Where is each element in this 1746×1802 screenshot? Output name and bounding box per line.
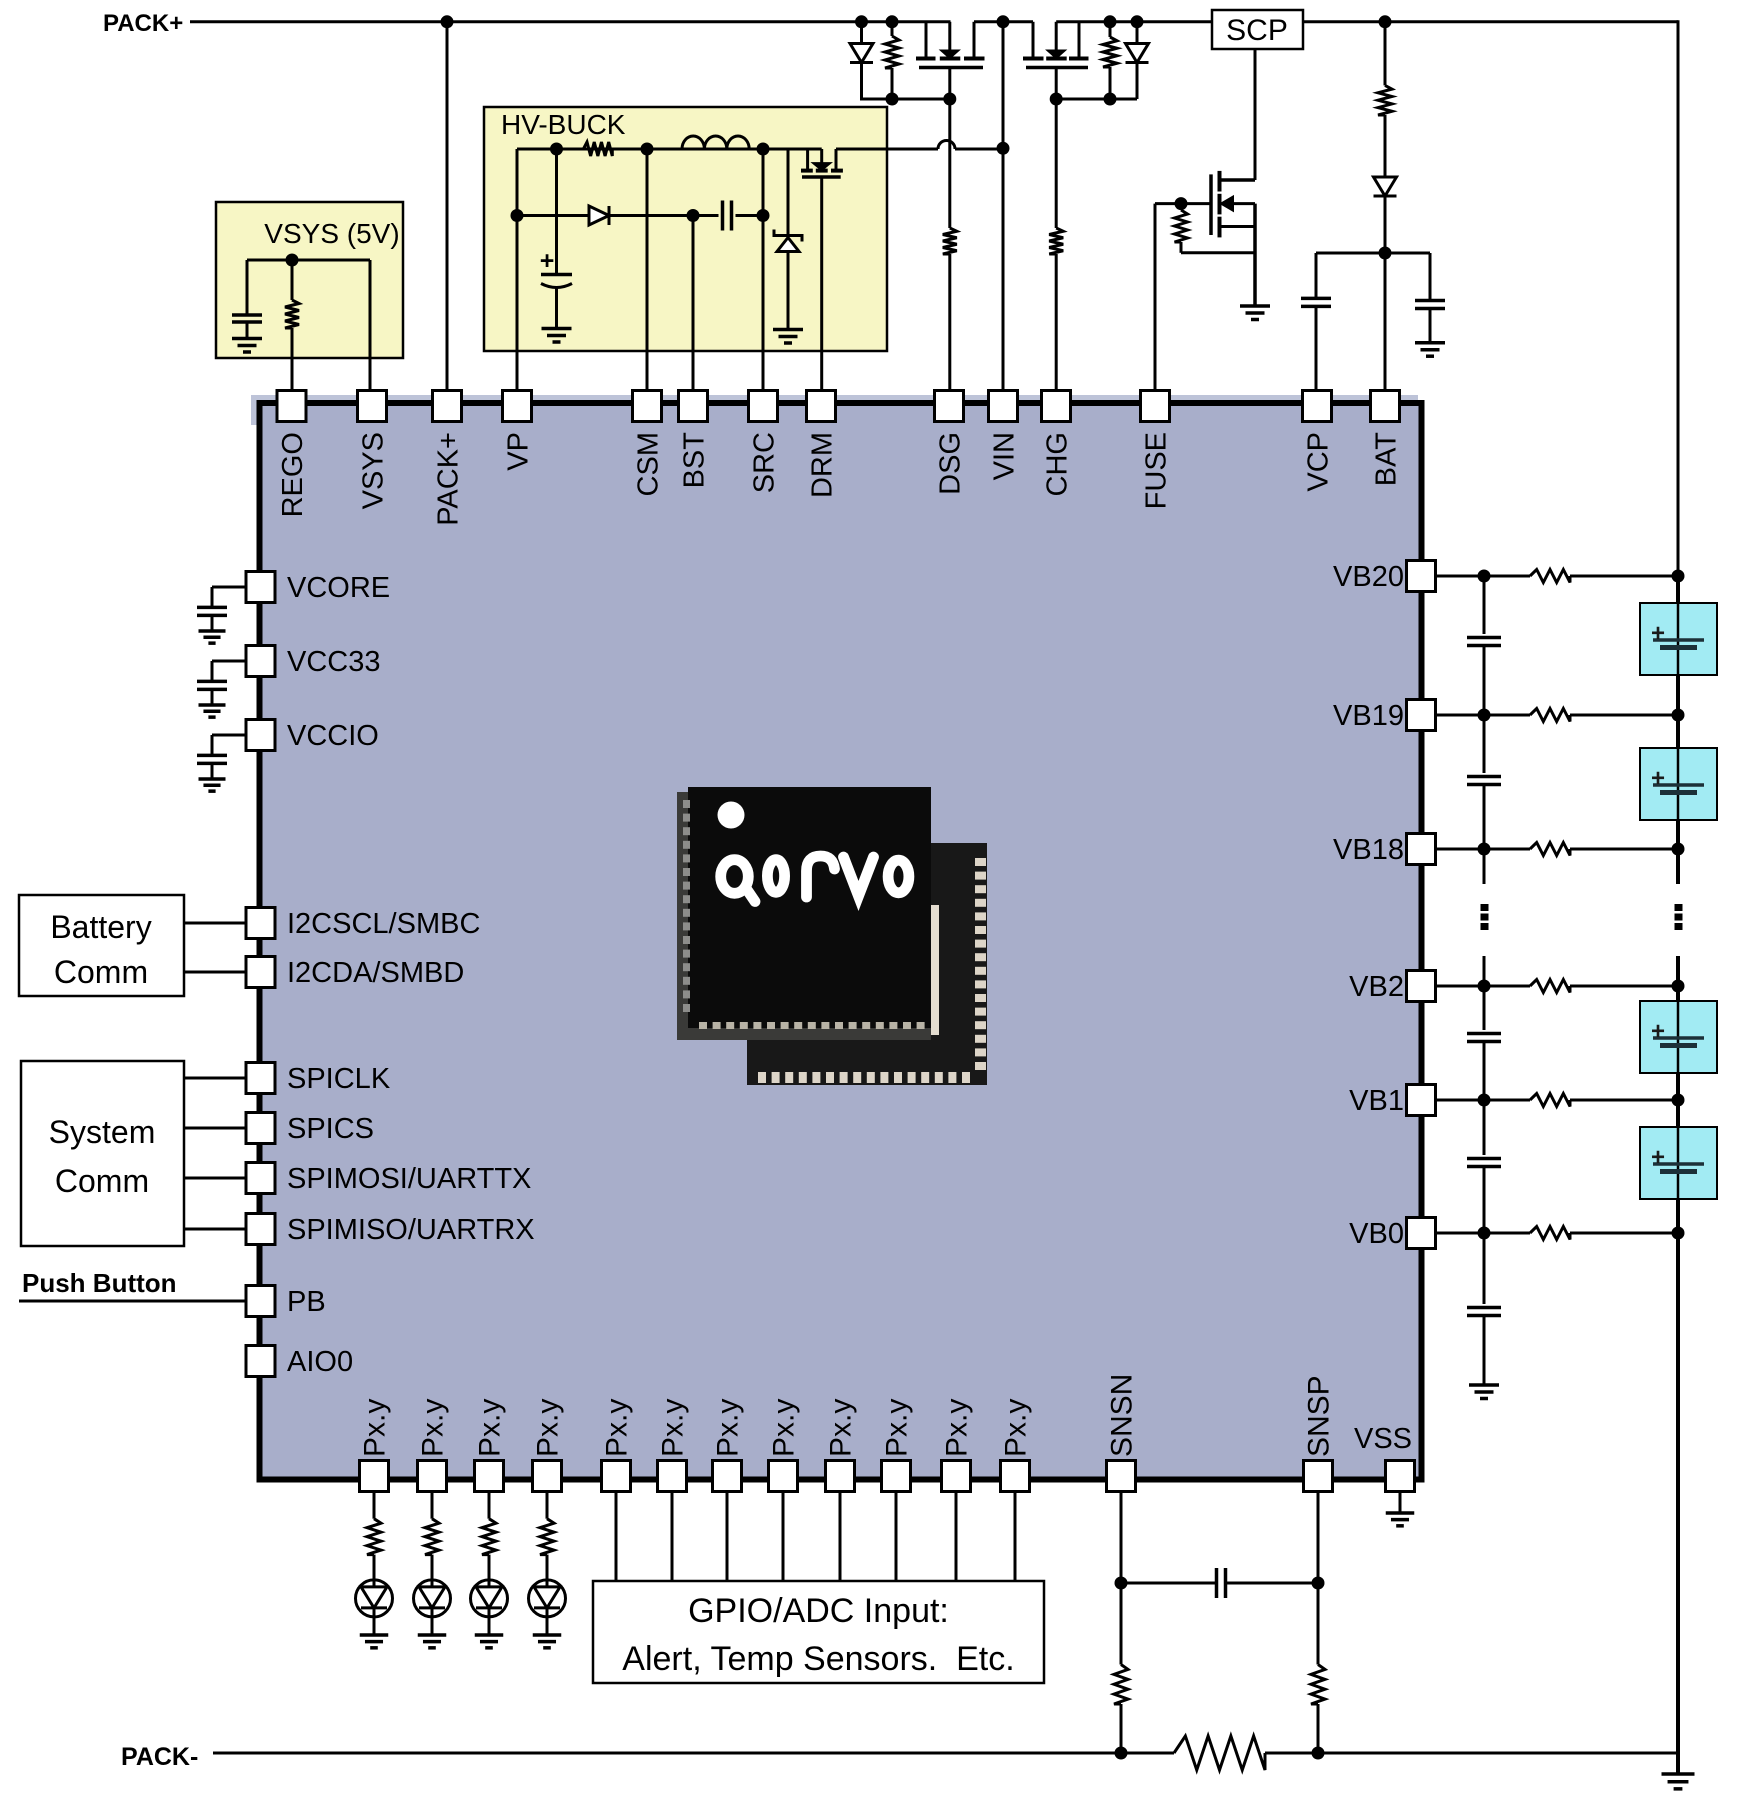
svg-text:PACK+: PACK+ <box>433 432 465 526</box>
svg-text:VCORE: VCORE <box>287 572 390 604</box>
svg-text:SNSP: SNSP <box>1303 1375 1336 1457</box>
svg-text:VCCIO: VCCIO <box>287 720 379 752</box>
svg-text:DSG: DSG <box>935 432 967 495</box>
svg-text:Comm: Comm <box>54 954 148 990</box>
svg-text:VB19: VB19 <box>1333 700 1404 732</box>
svg-text:HV-BUCK: HV-BUCK <box>501 109 626 140</box>
svg-text:Px.y: Px.y <box>601 1399 634 1457</box>
svg-text:Px.y: Px.y <box>881 1399 914 1457</box>
svg-text:PACK+: PACK+ <box>103 10 183 37</box>
svg-text:Px.y: Px.y <box>1000 1399 1033 1457</box>
svg-text:Px.y: Px.y <box>657 1399 690 1457</box>
svg-text:VSYS (5V): VSYS (5V) <box>264 218 399 249</box>
svg-text:I2CSCL/SMBC: I2CSCL/SMBC <box>287 908 480 940</box>
svg-text:System: System <box>49 1114 156 1150</box>
svg-text:+: + <box>1651 1018 1665 1045</box>
svg-text:+: + <box>540 247 555 275</box>
svg-text:PACK-: PACK- <box>121 1743 198 1771</box>
svg-text:Px.y: Px.y <box>712 1399 745 1457</box>
svg-text:FUSE: FUSE <box>1141 432 1173 509</box>
svg-text:Px.y: Px.y <box>474 1399 507 1457</box>
svg-text:SPICS: SPICS <box>287 1113 374 1145</box>
svg-text:Px.y: Px.y <box>768 1399 801 1457</box>
svg-text:I2CDA/SMBD: I2CDA/SMBD <box>287 957 464 989</box>
svg-text:BST: BST <box>679 432 711 489</box>
svg-text:DRM: DRM <box>807 432 839 498</box>
svg-text:VB1: VB1 <box>1349 1085 1404 1117</box>
svg-text:GPIO/ADC Input:: GPIO/ADC Input: <box>688 1592 949 1630</box>
svg-text:AIO0: AIO0 <box>287 1346 353 1378</box>
svg-text:VB20: VB20 <box>1333 561 1404 593</box>
svg-text:VB2: VB2 <box>1349 971 1404 1003</box>
svg-text:Px.y: Px.y <box>825 1399 858 1457</box>
svg-text:VB0: VB0 <box>1349 1218 1404 1250</box>
svg-text:CSM: CSM <box>633 432 665 496</box>
svg-text:Px.y: Px.y <box>359 1399 392 1457</box>
svg-text:CHG: CHG <box>1042 432 1074 496</box>
svg-text:VSS: VSS <box>1354 1423 1412 1455</box>
svg-text:Battery: Battery <box>50 909 151 945</box>
svg-text:VCP: VCP <box>1303 432 1335 492</box>
svg-text:SRC: SRC <box>749 432 781 493</box>
svg-text:VCC33: VCC33 <box>287 646 381 678</box>
svg-text:+: + <box>1651 620 1665 647</box>
svg-text:SNSN: SNSN <box>1106 1374 1139 1457</box>
svg-text:Px.y: Px.y <box>417 1399 450 1457</box>
svg-text:Comm: Comm <box>55 1163 149 1199</box>
svg-text:+: + <box>1651 1144 1665 1171</box>
svg-text:SPICLK: SPICLK <box>287 1063 391 1095</box>
svg-text:Alert, Temp Sensors. Etc.: Alert, Temp Sensors. Etc. <box>622 1640 1014 1678</box>
svg-text:VB18: VB18 <box>1333 834 1404 866</box>
svg-text:VP: VP <box>503 432 535 471</box>
svg-text:VIN: VIN <box>989 432 1021 480</box>
svg-text:BAT: BAT <box>1371 432 1403 487</box>
svg-text:+: + <box>1651 765 1665 792</box>
svg-text:Px.y: Px.y <box>532 1399 565 1457</box>
svg-text:PB: PB <box>287 1286 326 1318</box>
svg-text:Push Button: Push Button <box>22 1268 177 1298</box>
svg-text:SCP: SCP <box>1226 14 1288 47</box>
svg-text:VSYS: VSYS <box>358 432 390 509</box>
svg-text:SPIMOSI/UARTTX: SPIMOSI/UARTTX <box>287 1163 531 1195</box>
svg-text:SPIMISO/UARTRX: SPIMISO/UARTRX <box>287 1214 535 1246</box>
svg-text:REGO: REGO <box>277 432 309 517</box>
svg-text:Px.y: Px.y <box>941 1399 974 1457</box>
